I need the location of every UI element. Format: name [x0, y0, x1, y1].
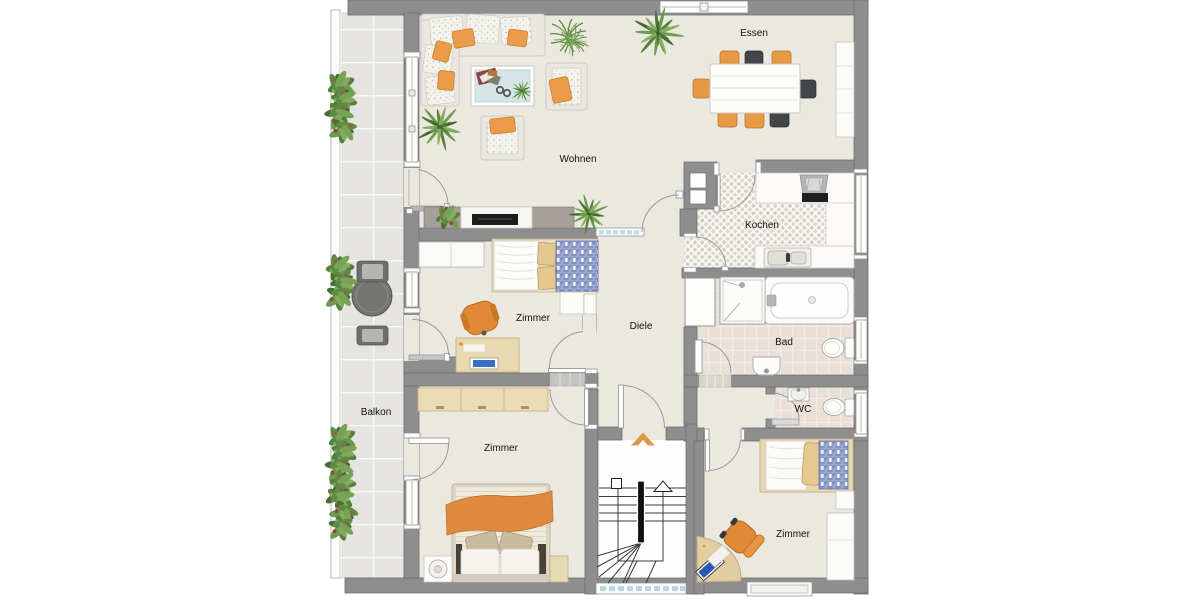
svg-text:Kochen: Kochen	[745, 220, 779, 231]
svg-text:Diele: Diele	[630, 321, 653, 332]
svg-text:Zimmer: Zimmer	[516, 313, 551, 324]
svg-text:Bad: Bad	[775, 337, 793, 348]
svg-text:Balkon: Balkon	[361, 407, 392, 418]
svg-text:Essen: Essen	[740, 28, 768, 39]
svg-text:Zimmer: Zimmer	[484, 443, 519, 454]
svg-text:Wohnen: Wohnen	[559, 154, 596, 165]
svg-text:Zimmer: Zimmer	[776, 529, 811, 540]
svg-text:WC: WC	[795, 404, 812, 415]
